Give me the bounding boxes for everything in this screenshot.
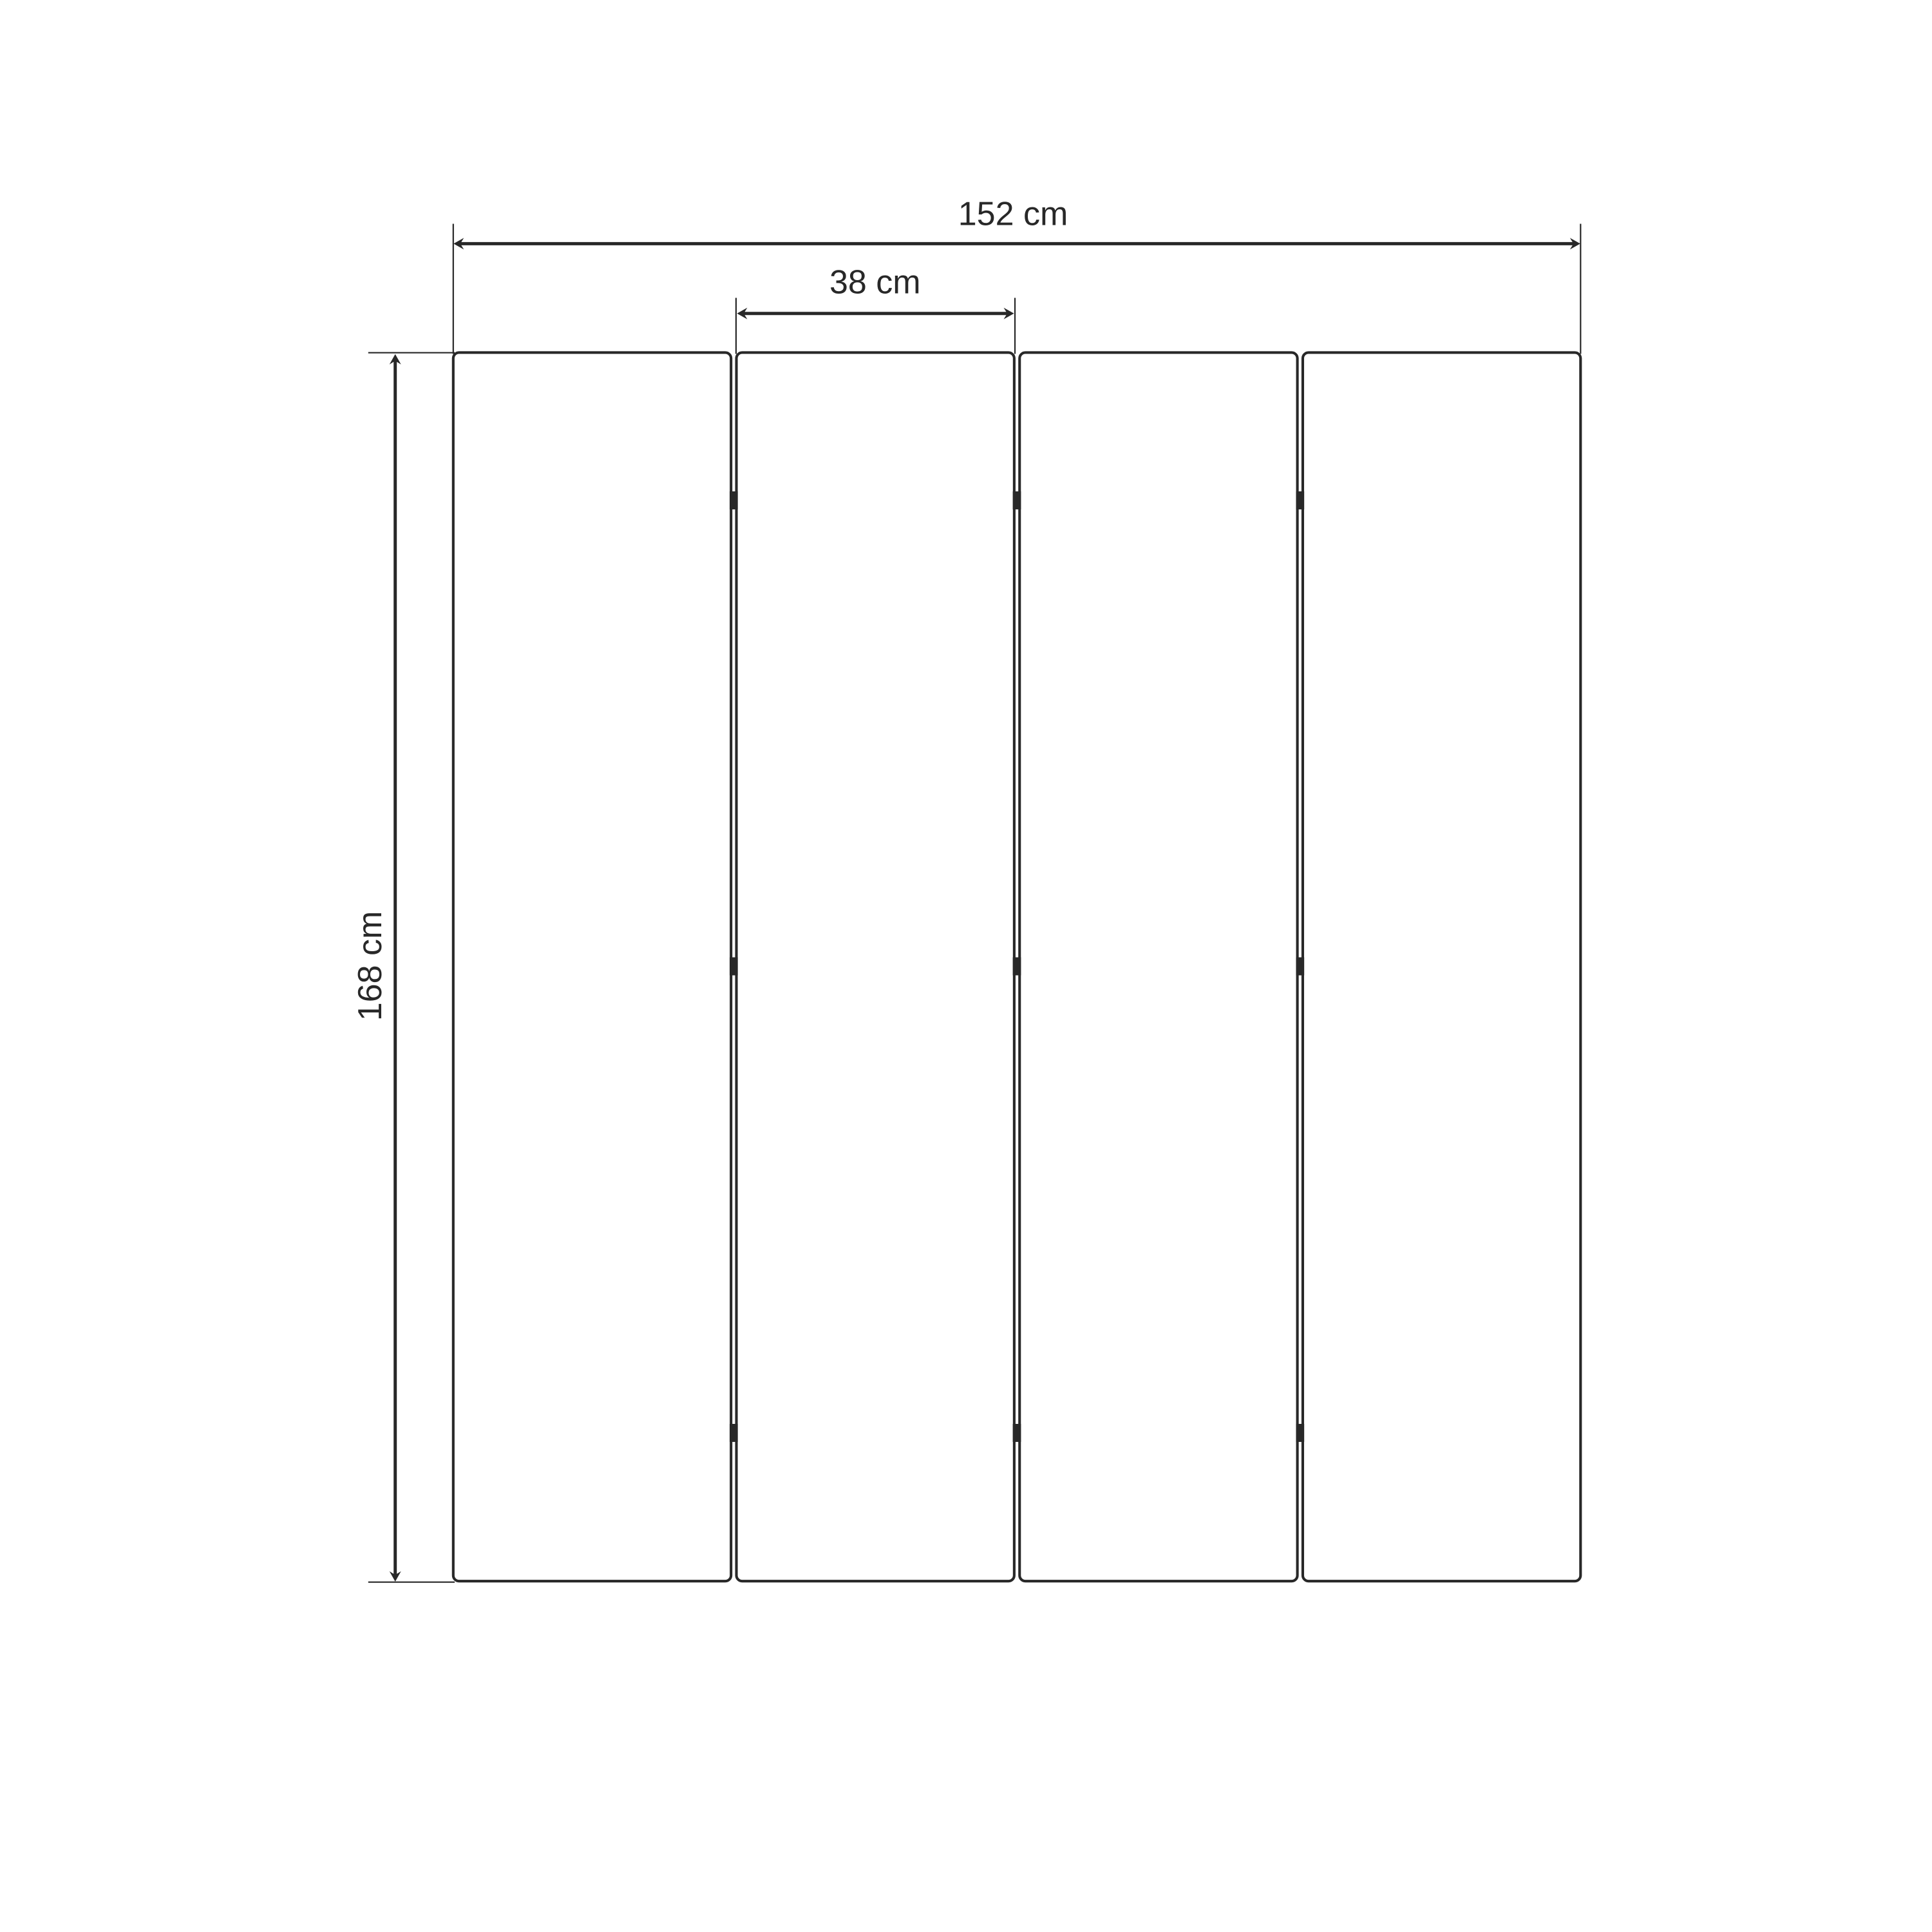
svg-text:168 cm: 168 cm (352, 911, 389, 1021)
svg-text:38 cm: 38 cm (829, 263, 921, 301)
svg-text:152 cm: 152 cm (958, 196, 1068, 233)
